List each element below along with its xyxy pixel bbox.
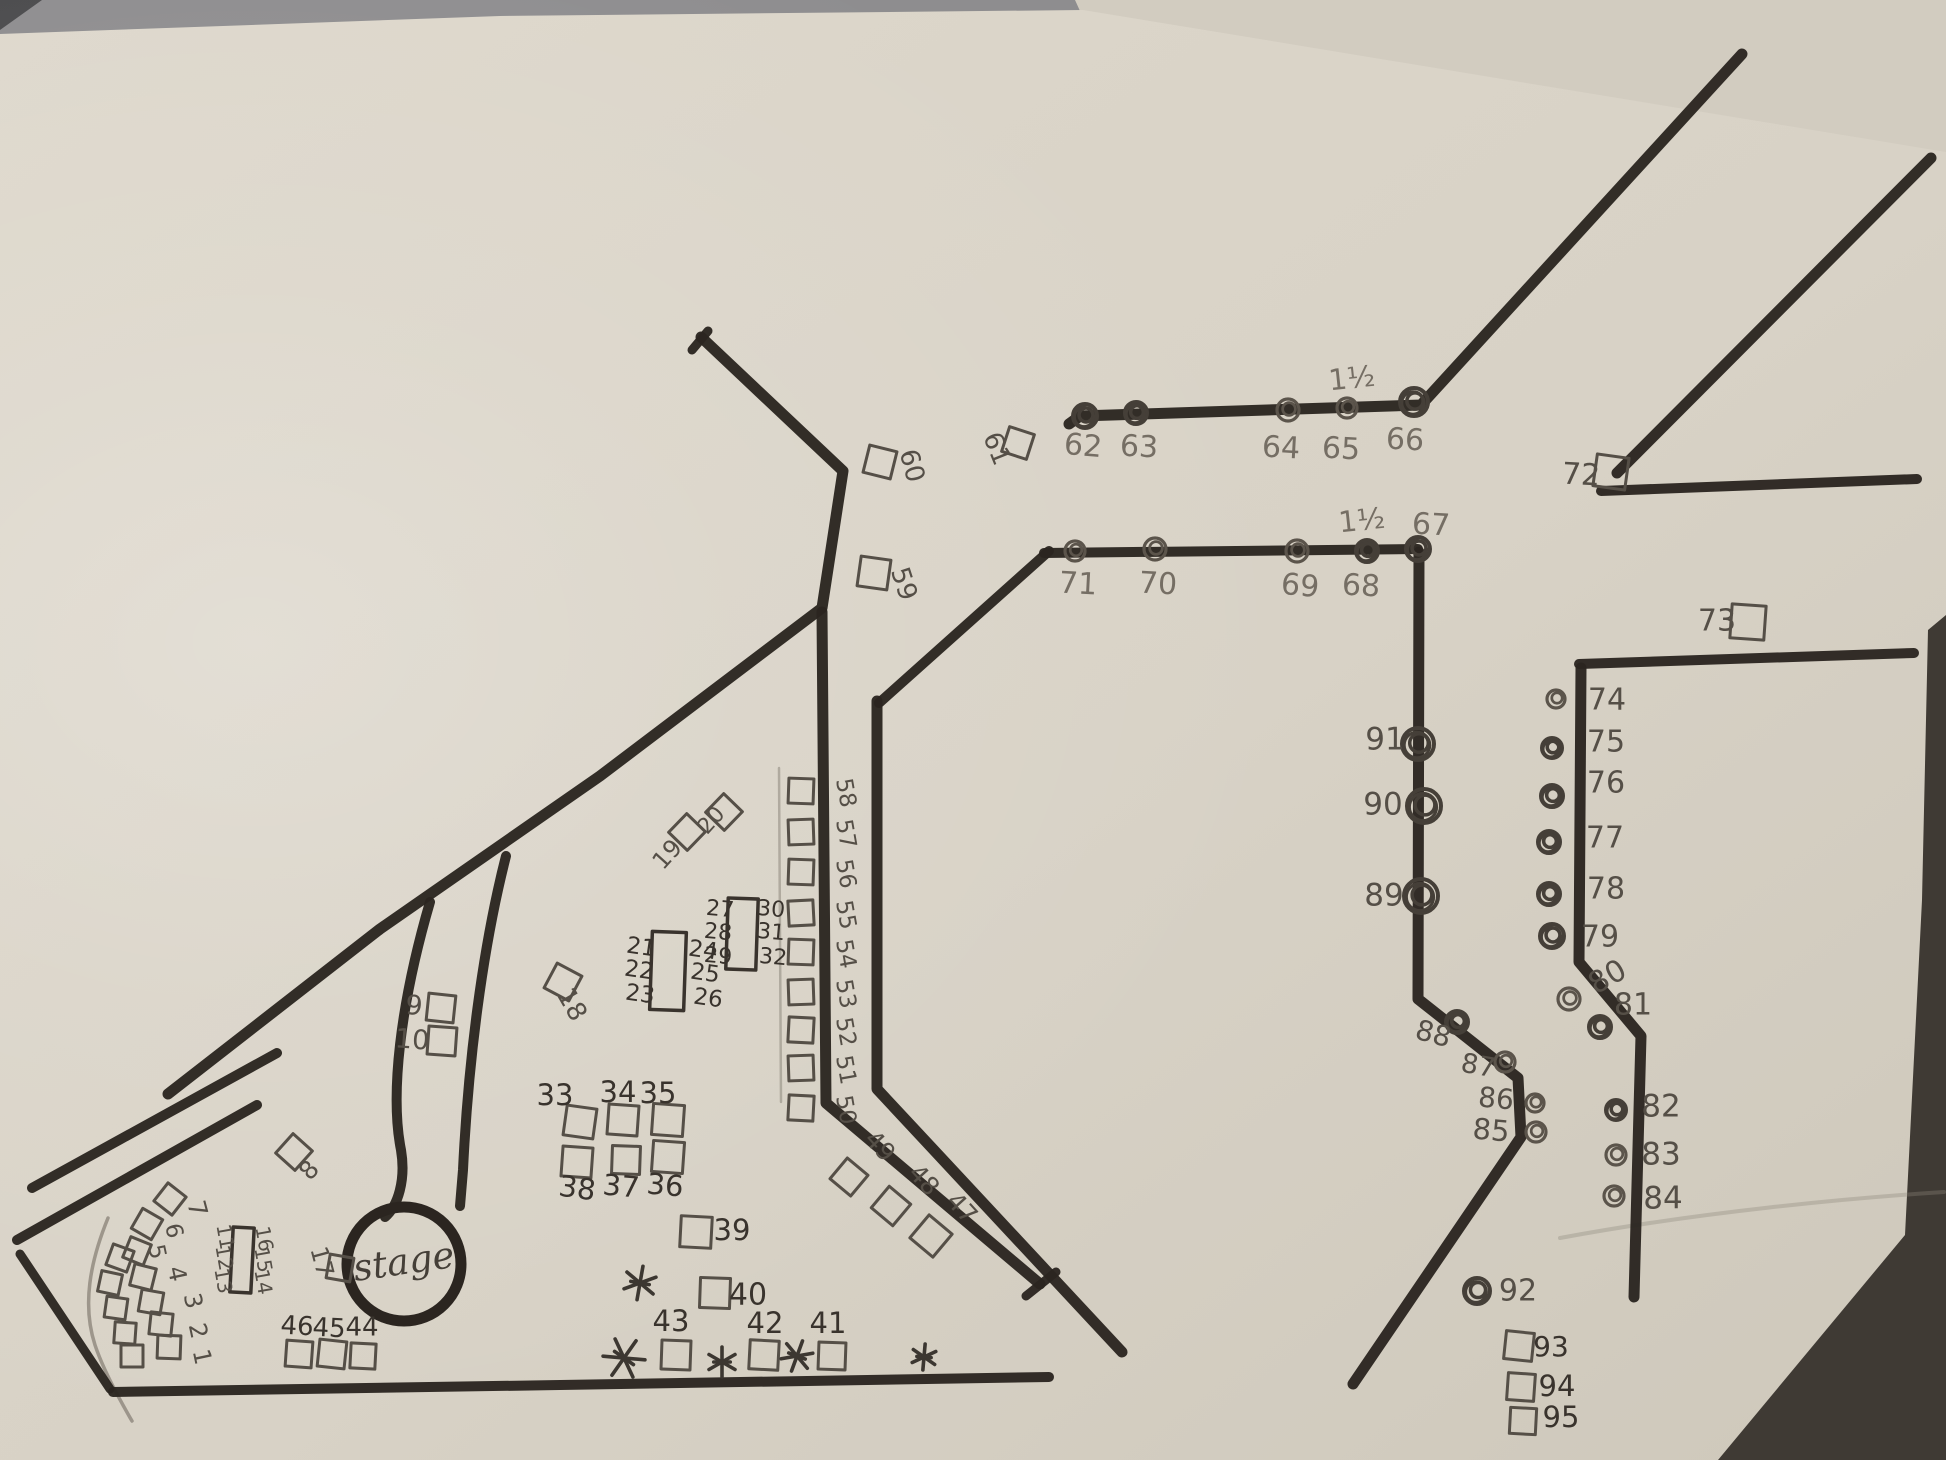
booth-number-label: 92 — [1499, 1274, 1537, 1309]
booth-number-label: 95 — [1543, 1400, 1580, 1434]
booth-number-label: 1½ — [1327, 359, 1377, 398]
booth-number-label: 9 — [404, 990, 423, 1022]
booth-number-label: 65 — [1321, 431, 1361, 468]
booth-number-label: 64 — [1261, 430, 1301, 467]
booth-number-label: 10 — [394, 1023, 430, 1056]
booth-number-label: 62 — [1063, 427, 1104, 465]
booth-number-label: 13 — [209, 1266, 237, 1295]
booth-number-label: 34 — [600, 1075, 637, 1109]
booth-number-label: 69 — [1280, 567, 1321, 605]
floor-plan-map: stage12345678910111213161514171819202122… — [0, 0, 1946, 1460]
asterisk-stroke — [917, 1356, 931, 1357]
booth-number-label: 53 — [830, 977, 861, 1010]
booth-number-label: 36 — [645, 1166, 685, 1203]
booth-number-label: 67 — [1411, 507, 1451, 544]
booth-number-label: 78 — [1587, 872, 1625, 907]
booth-number-label: 31 — [756, 919, 786, 946]
booth-number-label: 70 — [1138, 566, 1178, 603]
booth-number-label: 29 — [703, 943, 733, 970]
booth-number-label: 41 — [810, 1306, 847, 1340]
booth-number-label: 45 — [312, 1313, 347, 1345]
booth-number-label: 1½ — [1337, 501, 1387, 540]
booth-number-label: 84 — [1643, 1181, 1682, 1217]
booth-number-label: 23 — [624, 980, 657, 1010]
booth-number-label: 39 — [714, 1213, 751, 1247]
booth-number-label: 66 — [1385, 422, 1425, 459]
booth-number-label: 82 — [1641, 1089, 1680, 1125]
booth-number-label: 77 — [1586, 821, 1624, 856]
booth-number-label: 35 — [640, 1076, 677, 1110]
booth-number-label: 68 — [1341, 568, 1381, 605]
photo-of-hand-drawn-floor-plan: stage12345678910111213161514171819202122… — [0, 0, 1946, 1460]
booth-number-label: 83 — [1641, 1137, 1680, 1173]
booth-number-label: 87 — [1459, 1048, 1498, 1084]
booth-number-label: 46 — [280, 1311, 315, 1343]
booth-number-label: 76 — [1587, 766, 1625, 801]
booth-number-label: 56 — [830, 857, 861, 890]
booth-number-label: 50 — [830, 1093, 861, 1126]
booth-number-label: 91 — [1365, 722, 1404, 758]
booth-number-label: 75 — [1587, 725, 1625, 760]
booth-number-label: 71 — [1058, 566, 1098, 603]
booth-number-label: 42 — [747, 1306, 784, 1340]
booth-number-label: 72 — [1561, 457, 1601, 494]
booth-number-label: 58 — [830, 776, 861, 809]
booth-number-label: 73 — [1698, 604, 1736, 639]
booth-number-label: 90 — [1363, 787, 1402, 823]
light-reflection — [0, 0, 1946, 1460]
booth-number-label: 43 — [653, 1304, 690, 1338]
booth-number-label: 74 — [1588, 683, 1626, 718]
booth-number-label: 37 — [601, 1167, 641, 1204]
booth-number-label: 89 — [1364, 878, 1403, 914]
booth-number-label: 85 — [1471, 1111, 1511, 1148]
booth-number-label: 81 — [1614, 988, 1652, 1023]
booth-number-label: 38 — [557, 1169, 598, 1208]
booth-number-label: 52 — [830, 1015, 861, 1048]
booth-number-label: 32 — [758, 944, 788, 971]
booth-number-label: 51 — [830, 1053, 861, 1086]
booth-number-label: 54 — [830, 937, 861, 970]
booth-number-label: 57 — [830, 817, 861, 850]
booth-number-label: 93 — [1533, 1330, 1569, 1363]
booth-number-label: 55 — [830, 898, 861, 931]
booth-number-label: 14 — [249, 1267, 277, 1296]
booth-number-label: 94 — [1539, 1369, 1576, 1403]
booth-number-label: 26 — [692, 984, 725, 1014]
photo-background — [0, 0, 1946, 1460]
booth-number-label: 63 — [1119, 429, 1159, 466]
booth-number-label: 33 — [537, 1078, 574, 1112]
booth-number-label: 44 — [345, 1313, 378, 1343]
booth-number-label: 86 — [1477, 1081, 1515, 1117]
booth-number-label: 79 — [1581, 920, 1619, 955]
